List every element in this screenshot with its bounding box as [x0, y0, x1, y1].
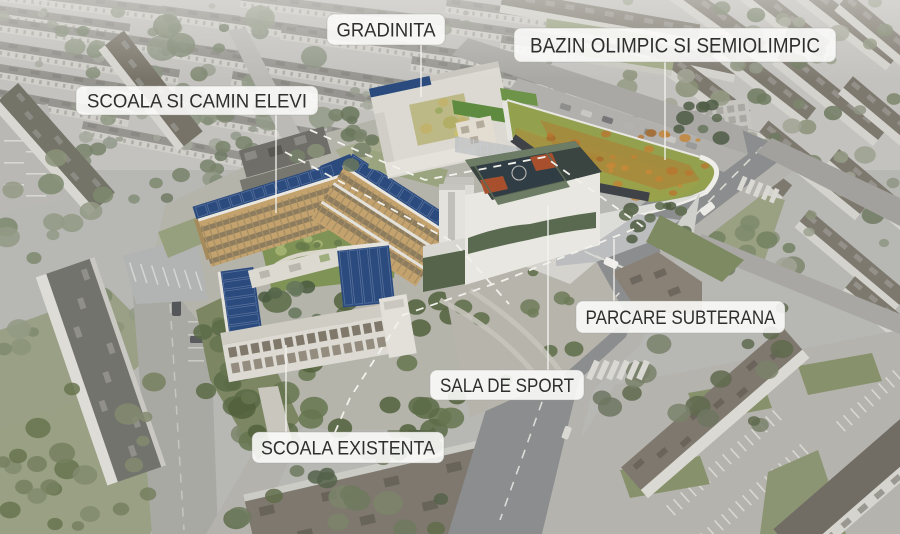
- svg-text:SCOALA EXISTENTA: SCOALA EXISTENTA: [261, 438, 435, 459]
- svg-text:BAZIN OLIMPIC SI SEMIOLIMPIC: BAZIN OLIMPIC SI SEMIOLIMPIC: [530, 35, 820, 58]
- svg-text:GRADINITA: GRADINITA: [337, 20, 436, 41]
- svg-text:PARCARE SUBTERANA: PARCARE SUBTERANA: [586, 308, 776, 329]
- svg-text:SCOALA SI CAMIN ELEVI: SCOALA SI CAMIN ELEVI: [87, 91, 307, 112]
- svg-text:SALA DE SPORT: SALA DE SPORT: [440, 376, 574, 397]
